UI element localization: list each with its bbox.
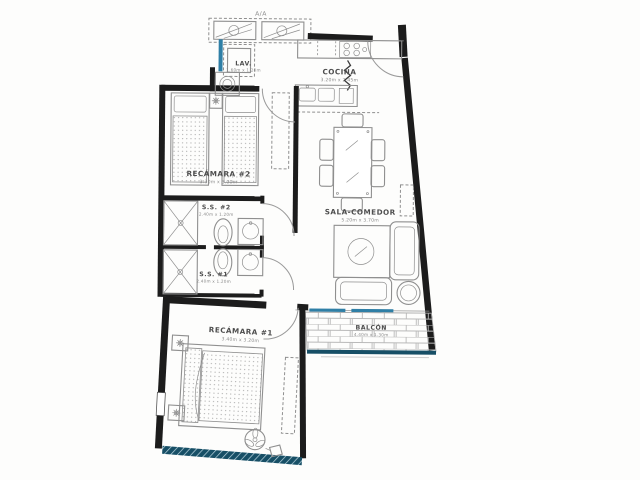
bedroom2-dims: 3.30m x 3.00m: [200, 179, 238, 185]
shower-2-icon: [163, 201, 197, 245]
kitchen-label: COCINA: [322, 67, 356, 76]
chair-icon: [371, 140, 385, 161]
bathroom2-label: S.S. #2: [202, 204, 231, 211]
bathroom2-door-swing-arc: [262, 204, 294, 236]
round-chair-icon: [397, 281, 420, 304]
hall-shelf: [400, 185, 413, 216]
ac-units: A/A: [209, 10, 311, 43]
bedroom1-dims: 3.40m x 3.20m: [221, 336, 259, 344]
bathroom2-dims: 2.40m x 1.20m: [199, 212, 234, 217]
double-bed-icon: [179, 344, 265, 430]
bedroom1-label: RECÁMARA #1: [209, 325, 274, 337]
sofa-bottom-icon: [335, 277, 391, 304]
toilet-2-icon: [214, 219, 232, 246]
kitchen-counter-top: [298, 40, 402, 59]
bedroom2-door-swing-arc: [262, 89, 295, 122]
floor-plan-page: A/A: [0, 0, 640, 480]
bedroom1-closet: [281, 357, 298, 434]
balcony-dims: 4.40m x 1.30m: [354, 332, 389, 337]
washer-icon: [215, 72, 239, 95]
kitchen-dims: 3.20m x 2.45m: [321, 77, 359, 83]
kitchen-sink-icon: [295, 85, 357, 107]
balcony-shadow: [321, 357, 429, 358]
right-exterior-wall: [402, 58, 435, 350]
ac-units-label: A/A: [255, 11, 267, 18]
bedroom-1: RECÁMARA #1 3.40m x 3.20m: [154, 296, 311, 465]
plan-root: A/A: [154, 10, 439, 467]
laundry-dims: 1.60m x 1.20m: [226, 67, 261, 72]
bedroom2-label: RECÁMARA #2: [186, 169, 250, 179]
kitchen-living-boundary: [297, 112, 379, 113]
ceiling-fan-icon: [243, 428, 266, 451]
bathroom1-label: S.S. #1: [199, 271, 228, 278]
bedroom-2: RECÁMARA #2 3.30m x 3.00m: [170, 85, 296, 233]
rug-coffee-table-icon: [334, 225, 390, 277]
dining-table-icon: [333, 127, 372, 197]
bathroom1-bottom-wall: [161, 295, 262, 296]
bedroom1-left-wall-b: [158, 416, 160, 449]
living-room-label: SALA-COMEDOR: [325, 207, 396, 217]
chair-icon: [342, 114, 363, 127]
bedroom1-top-wall: [165, 300, 266, 305]
chair-icon: [371, 166, 385, 187]
chair-icon: [320, 139, 334, 160]
balcony-label: BALCÓN: [355, 322, 387, 331]
balcony-edge: [307, 352, 436, 353]
bathroom1-dims: 2.40m x 1.20m: [196, 279, 231, 284]
balcony: BALCÓN 4.40m x 1.30m: [305, 312, 436, 358]
bathrooms: S.S. #2 2.40m x 1.20m S.S. #1 2.40m x 1.…: [159, 195, 295, 297]
bedroom1-window: [156, 392, 165, 415]
ac-unit-2-icon: [262, 22, 304, 40]
bedroom1-left-wall-a: [161, 297, 166, 393]
bedroom2-closet: [272, 93, 290, 169]
bathroom1-door-swing-arc: [262, 258, 294, 290]
living-room-dims: 5.20m x 3.70m: [341, 217, 379, 223]
left-exterior-wall: [160, 85, 162, 297]
ac-unit-1-icon: [214, 21, 256, 39]
stove-icon: [340, 41, 371, 57]
bedroom2-right-wall: [295, 86, 296, 233]
sink-2-icon: [238, 218, 263, 244]
shower-1-icon: [163, 250, 197, 294]
floor-plan-image: A/A: [0, 0, 640, 480]
kitchen-top-wall: [308, 36, 373, 39]
chair-icon: [319, 165, 333, 186]
bathroom2-top-wall: [159, 198, 262, 199]
sofa-right-icon: [390, 222, 420, 280]
sink-1-icon: [238, 249, 263, 275]
